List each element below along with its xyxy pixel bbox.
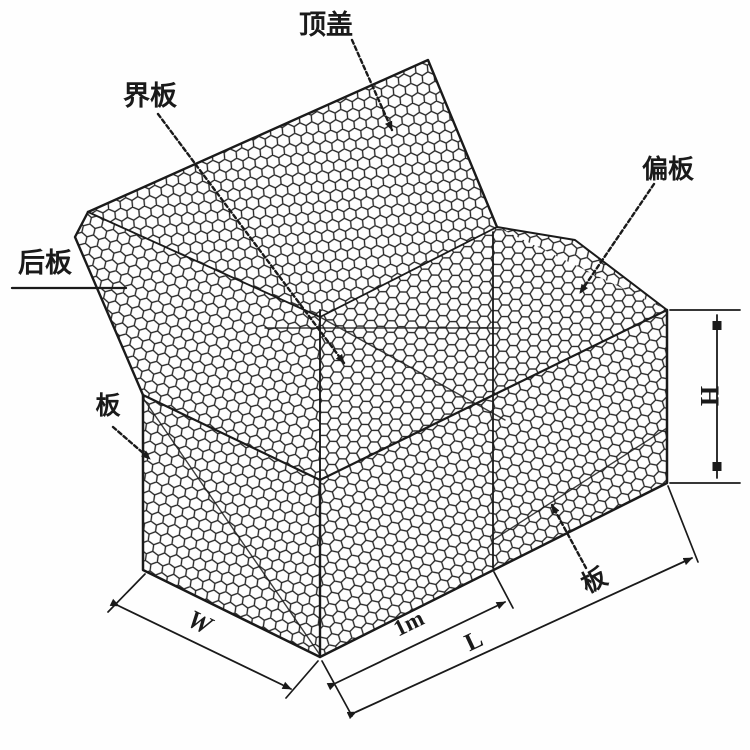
label-offset-plate: 偏板 xyxy=(642,154,694,185)
gabion-diagram-page: 顶盖 界板 偏板 后板 板 板 W 1m L H xyxy=(0,0,750,750)
gabion-diagram: 顶盖 界板 偏板 后板 板 板 W 1m L H xyxy=(0,0,750,750)
dim-label-l: L xyxy=(461,625,488,657)
label-front-plate: 板 xyxy=(576,562,611,599)
dim-label-h: H xyxy=(695,386,724,406)
label-top-cover: 顶盖 xyxy=(299,10,353,41)
label-back-plate: 后板 xyxy=(18,248,72,279)
h-end-marker-top xyxy=(713,321,722,330)
mesh-panels xyxy=(75,60,667,657)
h-end-marker-bottom xyxy=(713,462,722,471)
label-side-plate: 板 xyxy=(95,391,120,420)
label-divider-plate: 界板 xyxy=(123,81,177,112)
dim-label-w: W xyxy=(183,604,218,641)
